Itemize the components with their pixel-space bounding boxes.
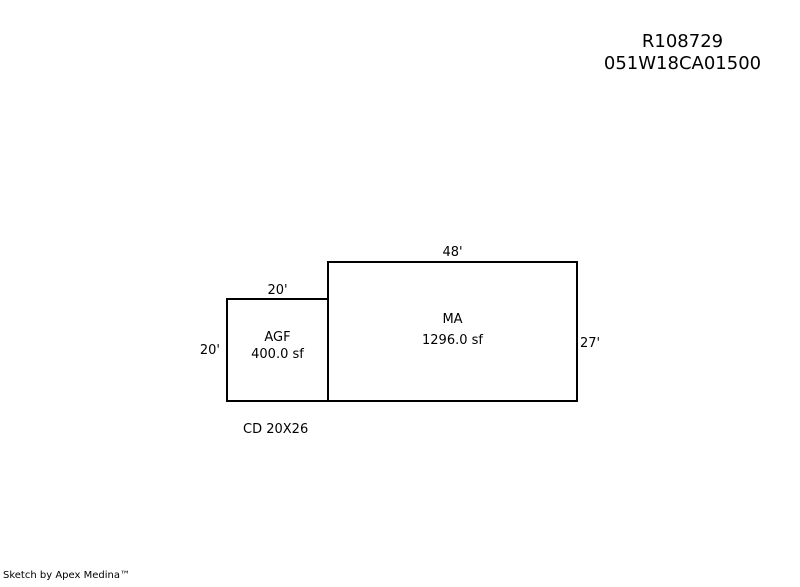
dim-agf-left: 20' xyxy=(160,343,220,358)
area-sqft-ma: 1296.0 sf xyxy=(327,333,578,348)
detached-structure-note: CD 20X26 xyxy=(243,422,308,437)
property-sketch-page: R108729 051W18CA01500 48' 27' 20' 20' MA… xyxy=(0,0,800,587)
dim-ma-top: 48' xyxy=(327,245,578,260)
area-sqft-agf: 400.0 sf xyxy=(226,347,329,362)
sketch-credit: Sketch by Apex Medina™ xyxy=(3,570,130,582)
header-ids: R108729 051W18CA01500 xyxy=(585,31,780,75)
taxlot-id: 051W18CA01500 xyxy=(585,53,780,75)
main-area-outline xyxy=(327,261,578,402)
dim-ma-right: 27' xyxy=(580,336,600,351)
account-id: R108729 xyxy=(585,31,780,53)
area-code-agf: AGF xyxy=(226,330,329,345)
dim-agf-top: 20' xyxy=(226,283,329,298)
area-code-ma: MA xyxy=(327,312,578,327)
